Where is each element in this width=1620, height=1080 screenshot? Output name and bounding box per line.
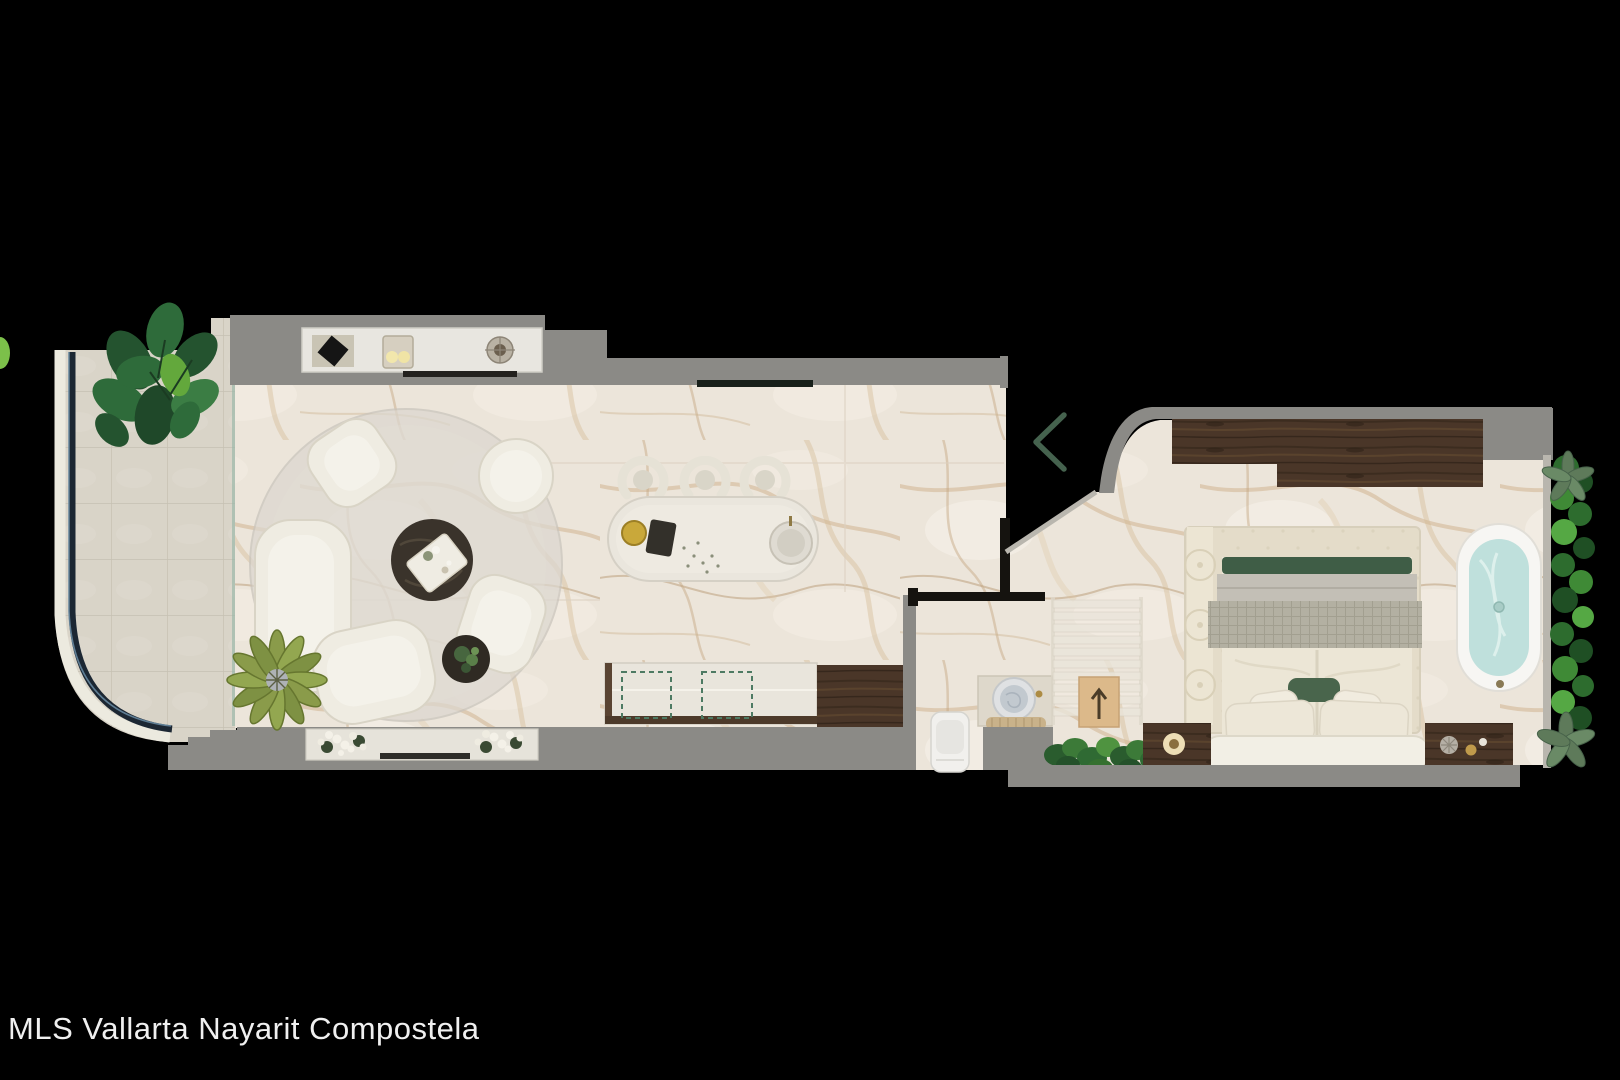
nightstand-right xyxy=(1425,723,1513,770)
console-shelf xyxy=(302,328,542,372)
coffee-table xyxy=(391,519,473,601)
tub-drain xyxy=(1494,602,1504,612)
previous-image-chevron-icon[interactable] xyxy=(1024,404,1076,480)
fruit-bowl xyxy=(622,521,646,545)
bedroom-bottom-wall xyxy=(1008,765,1520,787)
bathtub xyxy=(1457,524,1541,691)
tv-bar xyxy=(403,371,517,377)
direction-marker xyxy=(1079,677,1119,727)
side-table xyxy=(442,635,490,683)
wall-vent xyxy=(697,380,813,387)
green-throw xyxy=(1222,557,1412,574)
vanity-basin xyxy=(978,676,1052,730)
closet-wardrobe xyxy=(1172,419,1483,464)
watermark-text: MLS Vallarta Nayarit Compostela xyxy=(8,1012,480,1046)
nightstand-left xyxy=(1143,723,1211,767)
image-viewer: MLS Vallarta Nayarit Compostela xyxy=(0,0,1620,1080)
toilet xyxy=(931,712,969,772)
floorplan-rendering xyxy=(0,0,1620,1080)
bed xyxy=(1203,557,1430,770)
kitchen-counter xyxy=(605,663,817,724)
headboard xyxy=(1203,736,1430,770)
right-wall-line xyxy=(1543,455,1551,768)
kitchen-island xyxy=(608,497,818,581)
woven-blanket xyxy=(1208,601,1422,648)
